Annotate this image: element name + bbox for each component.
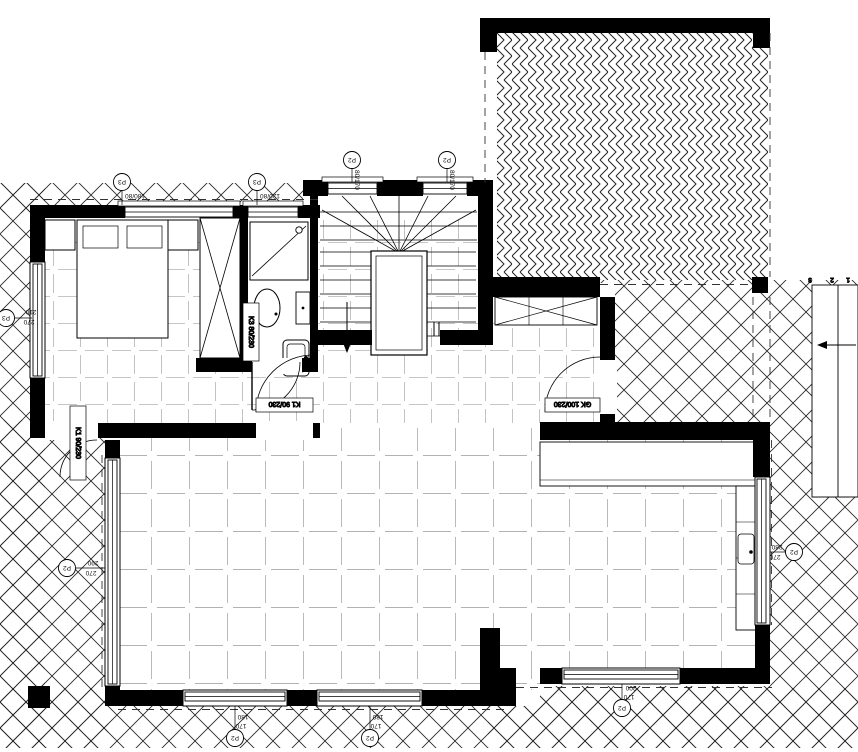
window-dim: 180/80: [125, 192, 145, 199]
wall-segment: [302, 358, 318, 372]
door-threshold: [252, 358, 302, 374]
window-dim: 120/80: [260, 192, 280, 199]
door-label: GK 100/230: [554, 400, 591, 407]
window-dim-w: 200: [625, 684, 636, 691]
wall-segment: [480, 628, 500, 706]
window-stair-right: [417, 177, 473, 194]
wall-segment: [540, 668, 562, 684]
window-south-3: [562, 668, 680, 684]
cistern-dot: [302, 307, 305, 310]
herringbone-paving: [497, 33, 768, 280]
sink-tap-dot: [749, 550, 753, 554]
window-dim-h: 270: [23, 318, 34, 325]
door-threshold: [598, 360, 617, 414]
window-dim-w: 280: [771, 543, 782, 550]
window-tag: P3: [253, 178, 261, 185]
window-south-1: [183, 690, 287, 706]
window-tag: P3: [2, 314, 10, 321]
wall-segment: [755, 625, 770, 684]
kitchen-counter-top: [540, 442, 768, 486]
shower-drain-icon: [296, 227, 302, 233]
wall-segment: [105, 440, 120, 458]
steps-outline: [812, 285, 858, 497]
wall-segment: [540, 422, 770, 440]
toilet-valve-dot: [275, 313, 278, 316]
wall-segment: [478, 196, 493, 345]
door-label: K1 90/230: [268, 400, 300, 407]
window-dim: 80/170: [448, 170, 455, 190]
pillow-right: [127, 226, 162, 248]
window-tag: P2: [348, 156, 356, 163]
floor-plan-canvas: K3 80/230 K1 90/230 GK 100/230 K1 90/230…: [0, 0, 858, 752]
window-south-2: [317, 690, 422, 706]
window-west-living: [105, 458, 120, 686]
exterior-steps: 3 2 1: [808, 276, 858, 497]
wall-segment: [440, 330, 478, 345]
wall-segment: [287, 690, 317, 706]
wall-segment: [196, 358, 240, 372]
carport-corner-right: [753, 18, 770, 48]
window-tag: P2: [366, 734, 374, 741]
kitchen-sink: [738, 534, 754, 564]
wall-segment: [600, 297, 615, 362]
carport-herringbone: [497, 33, 768, 280]
wall-segment: [30, 378, 45, 438]
pillow-left: [83, 226, 118, 248]
wall-segment: [30, 205, 45, 262]
carport-pillar: [752, 277, 768, 293]
window-east-living: [755, 477, 770, 625]
wall-segment: [500, 668, 516, 706]
hall-closet: [495, 297, 597, 325]
window-dim-h: 270: [769, 553, 780, 560]
step-number-1: 1: [846, 276, 850, 283]
living-tiles-left: [120, 428, 540, 690]
window-dim-w: 290: [87, 559, 98, 566]
window-dim-w: 180: [237, 713, 248, 720]
wall-segment: [233, 205, 248, 218]
carport-corner-left: [480, 18, 497, 52]
wall-segment: [467, 180, 493, 196]
wall-segment: [753, 440, 770, 477]
window-sill: [118, 201, 240, 206]
nightstand-right: [168, 220, 198, 250]
wall-segment: [318, 330, 372, 345]
window-dim-w: 180: [372, 713, 383, 720]
window-sill: [322, 177, 383, 182]
window-bathroom-top: [243, 201, 303, 217]
window-dim-h: 170: [623, 693, 634, 700]
wall-segment: [313, 423, 320, 438]
window-sill: [417, 177, 473, 182]
exterior-pillar: [28, 686, 50, 708]
wall-segment: [377, 180, 423, 196]
step-number-2: 2: [830, 276, 834, 283]
window-tag: P2: [790, 548, 798, 555]
wall-segment: [105, 690, 183, 706]
floor-plan-drawing: K3 80/230 K1 90/230 GK 100/230 K1 90/230…: [0, 0, 858, 752]
window-tag: P2: [231, 734, 239, 741]
wall-segment: [98, 423, 256, 438]
window-tag: P2: [63, 564, 71, 571]
window-dim: 80/170: [353, 170, 360, 190]
door-label: K1 90/230: [74, 427, 81, 459]
window-dim-h: 170: [235, 722, 246, 729]
nightstand-left: [45, 220, 75, 250]
door-threshold: [256, 421, 313, 440]
carport-wall-top: [480, 18, 770, 33]
window-stair-left: [322, 177, 383, 194]
carport-wall-bottom: [488, 277, 600, 293]
window-tag: P3: [118, 178, 126, 185]
stair-void: [371, 251, 427, 355]
window-dim-h: 170: [370, 722, 381, 729]
window-dim-h: 270: [85, 569, 96, 576]
window-dim-w: 210: [25, 308, 36, 315]
window-tag: P2: [618, 704, 626, 711]
window-sill: [243, 201, 303, 206]
window-bedroom-top: [118, 201, 240, 217]
step-number-3: 3: [808, 276, 812, 283]
window-tag: P2: [443, 156, 451, 163]
door-label: K3 80/230: [247, 316, 254, 348]
wall-segment: [310, 180, 318, 365]
